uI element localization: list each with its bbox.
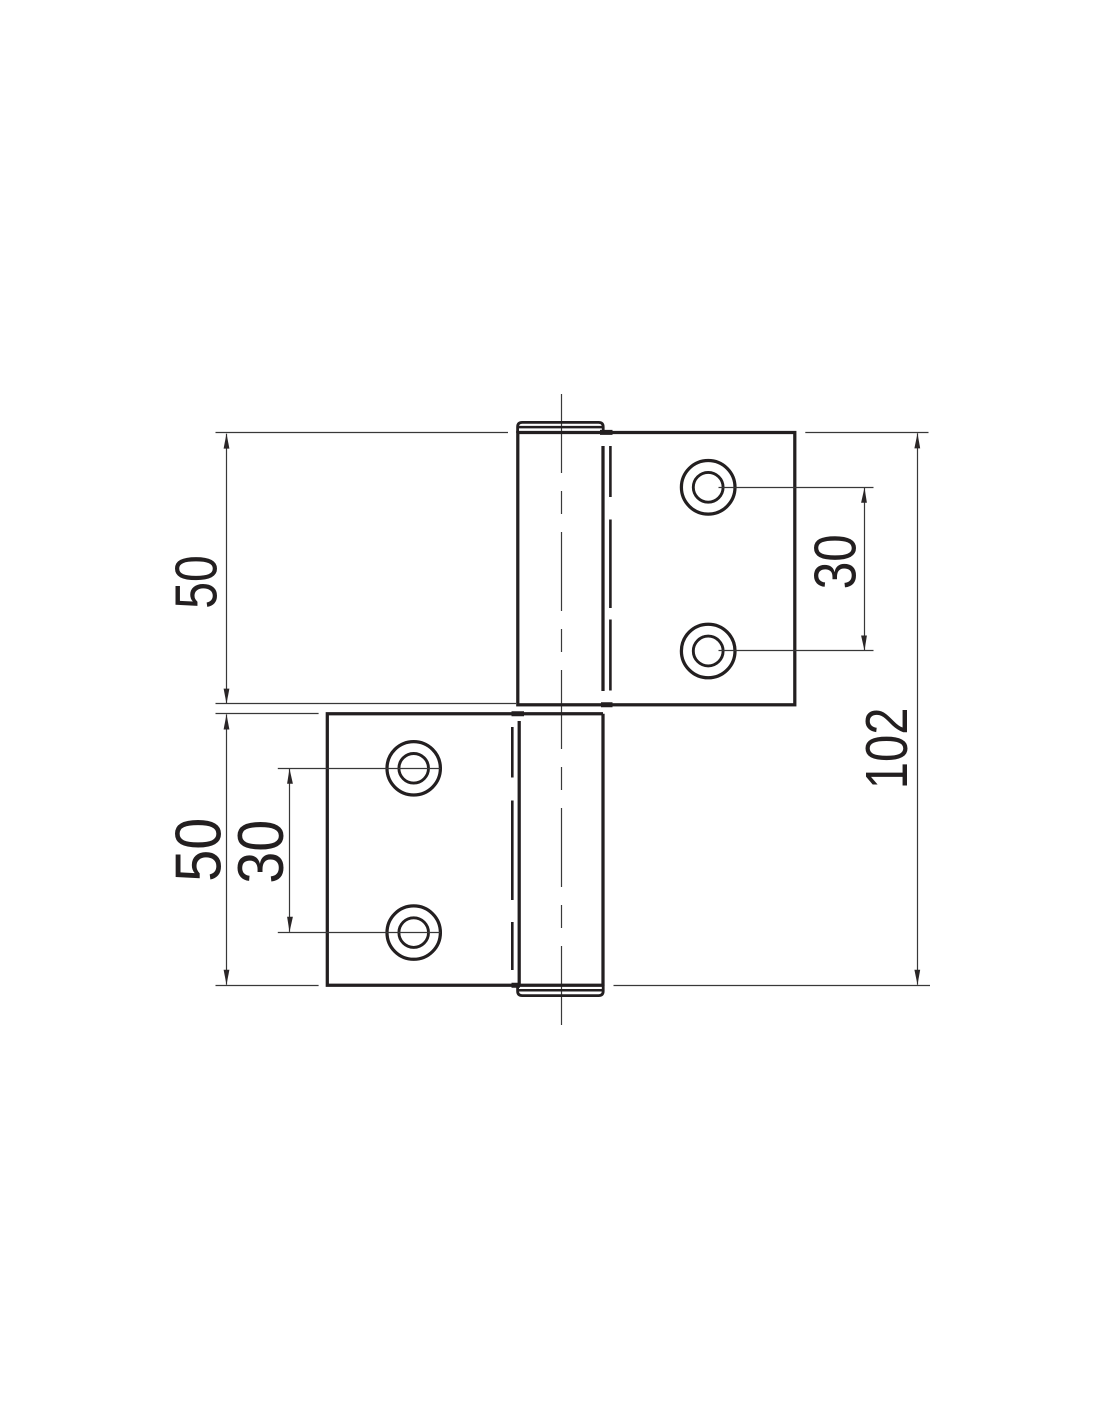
svg-text:50: 50	[163, 818, 235, 882]
svg-text:30: 30	[225, 820, 297, 884]
svg-text:102: 102	[854, 708, 920, 790]
svg-text:30: 30	[802, 534, 868, 589]
svg-text:50: 50	[163, 555, 229, 609]
